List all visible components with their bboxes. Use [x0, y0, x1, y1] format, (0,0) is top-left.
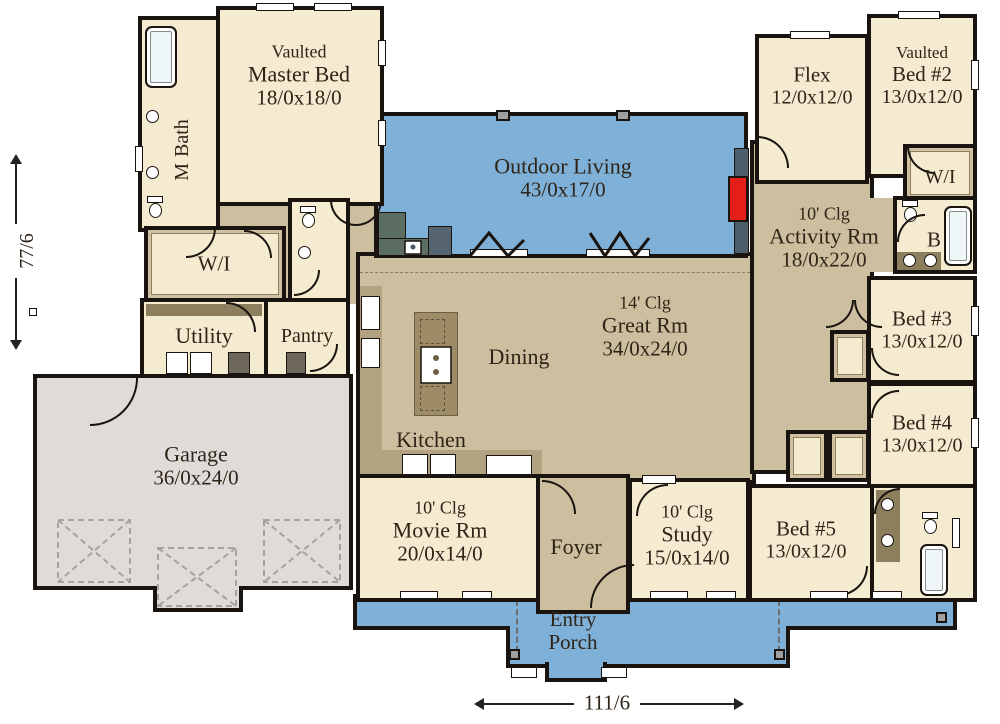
toilet-icon: [922, 512, 938, 534]
master-walkin-label: W/I: [198, 252, 231, 275]
dimension-arrow-icon: [734, 698, 744, 710]
dimension-line-vertical: [15, 278, 17, 340]
window: [314, 3, 352, 11]
entry-step-marker: [601, 667, 627, 678]
bathtub-icon: [944, 206, 972, 266]
floor-plan: Vaulted Master Bed 18/0x18/0 MBath W/I U…: [0, 0, 1000, 724]
great-rm-label: 14' Clg Great Rm 34/0x24/0: [602, 293, 688, 360]
garage-door-icon: [56, 518, 132, 584]
island-dashed-cabinet: [420, 319, 445, 344]
window: [650, 591, 688, 599]
dimension-line-vertical: [15, 162, 17, 224]
toilet-icon: [300, 206, 316, 228]
sink-icon: [903, 254, 916, 267]
island-dashed-cabinet: [420, 386, 445, 411]
window: [400, 591, 438, 599]
porch-post: [936, 612, 947, 623]
bath-b-label: B: [927, 228, 941, 251]
outdoor-cabinet: [428, 226, 452, 256]
sink-icon: [146, 166, 159, 179]
dimension-tick: [29, 308, 37, 316]
oven-icon: [361, 338, 380, 368]
pantry-label: Pantry: [281, 325, 333, 347]
washer-icon: [228, 352, 250, 374]
dining-label: Dining: [488, 345, 549, 369]
washer-icon: [166, 352, 188, 374]
bed4-label: Bed #4 13/0x12/0: [881, 411, 962, 456]
appliance-icon: [486, 455, 532, 475]
folding-door-icon: [588, 230, 652, 258]
patio-post: [616, 110, 630, 121]
hall-closet: [786, 430, 828, 482]
window: [952, 518, 960, 548]
dimension-line-horizontal: [640, 703, 734, 705]
garage-door-icon: [262, 518, 342, 584]
window: [706, 591, 736, 599]
freezer-icon: [286, 352, 306, 374]
utility-label: Utility: [175, 324, 232, 348]
dimension-arrow-icon: [10, 340, 22, 350]
dryer-icon: [190, 352, 212, 374]
movie-label: 10' Clg Movie Rm 20/0x14/0: [393, 498, 488, 565]
flex-label: Flex 12/0x12/0: [771, 63, 852, 108]
bed5-label: Bed #5 13/0x12/0: [765, 517, 846, 562]
window: [971, 306, 979, 336]
entry-step-marker: [511, 667, 537, 678]
study-label: 10' Clg Study 15/0x14/0: [644, 502, 729, 569]
bathtub-icon: [920, 544, 948, 596]
grill-icon: [404, 240, 422, 255]
outdoor-living-label: Outdoor Living 43/0x17/0: [494, 154, 632, 201]
porch-dashed-line-right: [778, 600, 780, 652]
fridge-icon: [361, 296, 380, 330]
bed3-label: Bed #3 13/0x12/0: [881, 307, 962, 352]
sink-cabinet-icon: [430, 454, 456, 476]
hall-closet: [828, 430, 870, 482]
window: [971, 60, 979, 90]
toilet-icon: [147, 196, 163, 218]
porch-dashed-line-left: [516, 600, 518, 652]
master-bed-label: Vaulted Master Bed 18/0x18/0: [248, 42, 350, 109]
fireplace-icon: [728, 176, 748, 222]
window: [462, 591, 492, 599]
window: [872, 591, 902, 599]
garage-door-icon: [156, 546, 238, 608]
hall-closet: [830, 330, 870, 382]
porch-post: [509, 649, 520, 660]
dimension-arrow-icon: [474, 698, 484, 710]
height-dimension-label: 77/6: [16, 233, 38, 269]
window: [642, 475, 676, 484]
dishwasher-icon: [402, 454, 428, 476]
garage-label: Garage 36/0x24/0: [153, 442, 238, 489]
entry-porch-step: [545, 662, 607, 682]
activity-label: 10' Clg Activity Rm 18/0x22/0: [769, 204, 878, 271]
dimension-arrow-icon: [10, 154, 22, 164]
ceiling-break-line: [360, 272, 750, 273]
bed2-walkin-label: W/I: [924, 166, 955, 188]
window: [898, 11, 940, 19]
window: [378, 40, 386, 66]
bathtub-icon: [145, 26, 177, 88]
window: [135, 146, 143, 172]
window: [256, 3, 294, 11]
foyer-label: Foyer: [550, 535, 601, 559]
stove-icon: [420, 346, 452, 384]
window: [971, 418, 979, 448]
folding-door-icon: [468, 230, 528, 258]
patio-post: [496, 110, 510, 121]
sink-icon: [881, 534, 894, 547]
entry-porch-label: Entry Porch: [549, 608, 598, 654]
dimension-line-horizontal: [484, 703, 574, 705]
window: [790, 31, 830, 39]
window: [378, 120, 386, 146]
m-bath-label: MBath: [171, 119, 193, 181]
width-dimension-label: 111/6: [584, 691, 630, 714]
bed2-label: Vaulted Bed #2 13/0x12/0: [881, 44, 962, 108]
sink-icon: [924, 254, 937, 267]
window: [810, 591, 848, 599]
kitchen-label: Kitchen: [396, 428, 466, 452]
sink-icon: [298, 246, 311, 259]
sink-icon: [146, 110, 159, 123]
porch-post: [774, 649, 785, 660]
